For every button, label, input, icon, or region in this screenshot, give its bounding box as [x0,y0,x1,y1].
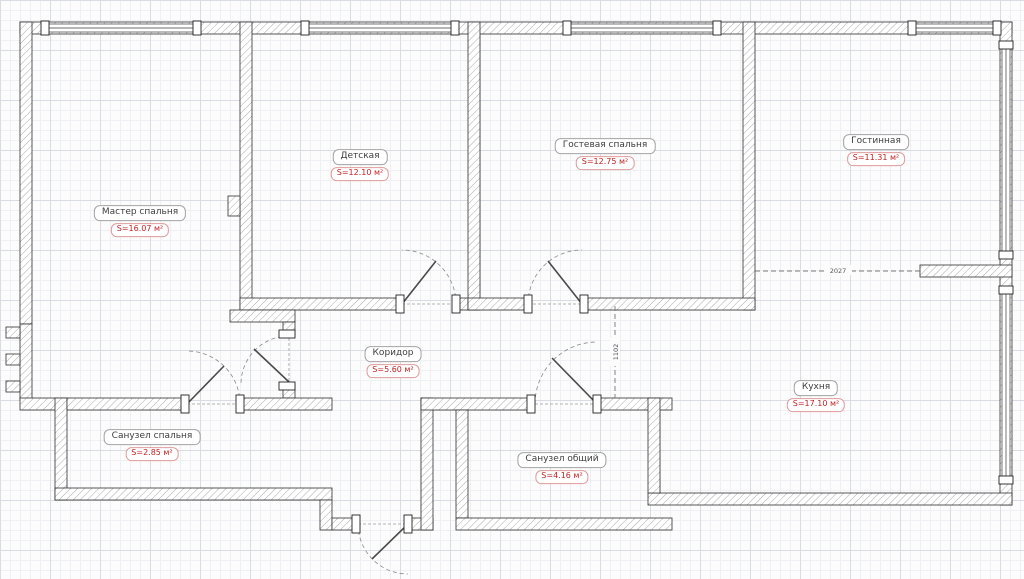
room-area-badge[interactable]: S=4.16 м² [535,470,588,483]
dimension-label-2027: 2027 [830,267,847,275]
wall-segment [240,398,332,410]
room-name-badge[interactable]: Санузел спальня [104,429,201,445]
wall-segment [240,298,402,310]
wall-niche-tooth [6,354,20,365]
door-swing-symbol [241,330,295,390]
open-passages: 2027 1102 [610,265,920,398]
room-name-badge[interactable]: Коридор [365,346,422,362]
room-label-living-room: Гостинная S=11.31 м² [843,134,909,166]
room-name-badge[interactable]: Детская [332,149,387,165]
wall-segment [20,324,32,400]
wall-segment [648,493,1012,505]
wall-segment [320,500,332,530]
wall-segment [230,310,295,322]
room-area-badge[interactable]: S=2.85 м² [125,447,178,460]
open-passage-dashed-line: 2027 [755,265,920,275]
room-name-badge[interactable]: Санузел общий [517,452,606,468]
door-swing-symbol [527,342,601,413]
room-label-kitchen: Кухня S=17.10 м² [787,380,845,412]
wall-segment [468,22,480,310]
windows [41,21,1013,484]
wall-segment [55,398,67,500]
door-swing-symbol [396,250,460,313]
wall-segment [20,22,32,324]
room-name-badge[interactable]: Мастер спальня [94,205,186,221]
room-area-badge[interactable]: S=16.07 м² [111,223,169,236]
wall-segment [648,398,660,493]
wall-segment [743,22,755,310]
door-swing-symbol [181,351,244,413]
wall-segment [920,265,1012,277]
room-label-corridor: Коридор S=5.60 м² [365,346,422,378]
room-area-badge[interactable]: S=5.60 м² [366,364,419,377]
entrance-door-swing-symbol [352,515,412,574]
dimension-label-1102: 1102 [612,344,620,361]
door-swing-symbol [524,250,588,313]
room-area-badge[interactable]: S=12.75 м² [576,156,634,169]
wall-segment [456,410,468,518]
room-label-guest-bedroom: Гостевая спальня S=12.75 м² [555,138,656,170]
room-name-badge[interactable]: Гостинная [843,134,909,150]
room-label-bathroom-shared: Санузел общий S=4.16 м² [517,452,606,484]
wall-segment [421,398,533,410]
room-name-badge[interactable]: Гостевая спальня [555,138,656,154]
wall-segment [421,398,433,530]
room-area-badge[interactable]: S=12.10 м² [331,167,389,180]
floor-plan-drawing: 2027 1102 [0,0,1024,579]
room-label-master-bedroom: Мастер спальня S=16.07 м² [94,205,186,237]
open-passage-dashed-line: 1102 [610,306,620,398]
wall-segment [67,398,187,410]
room-label-bathroom-master: Санузел спальня S=2.85 м² [104,429,201,461]
wall-niche-tooth [6,381,20,392]
room-name-badge[interactable]: Кухня [794,380,838,396]
room-label-kids-room: Детская S=12.10 м² [331,149,389,181]
wall-segment [228,196,240,216]
wall-segment [582,298,755,310]
wall-niche-tooth [6,327,20,338]
wall-segment [55,488,332,500]
wall-segment [597,398,672,410]
room-area-badge[interactable]: S=11.31 м² [847,152,905,165]
floor-plan-canvas: 2027 1102 Мастер спальня S=16.07 м² Детс… [0,0,1024,579]
wall-segment [468,298,525,310]
room-area-badge[interactable]: S=17.10 м² [787,398,845,411]
wall-segment [456,518,672,530]
wall-segment [240,22,252,310]
